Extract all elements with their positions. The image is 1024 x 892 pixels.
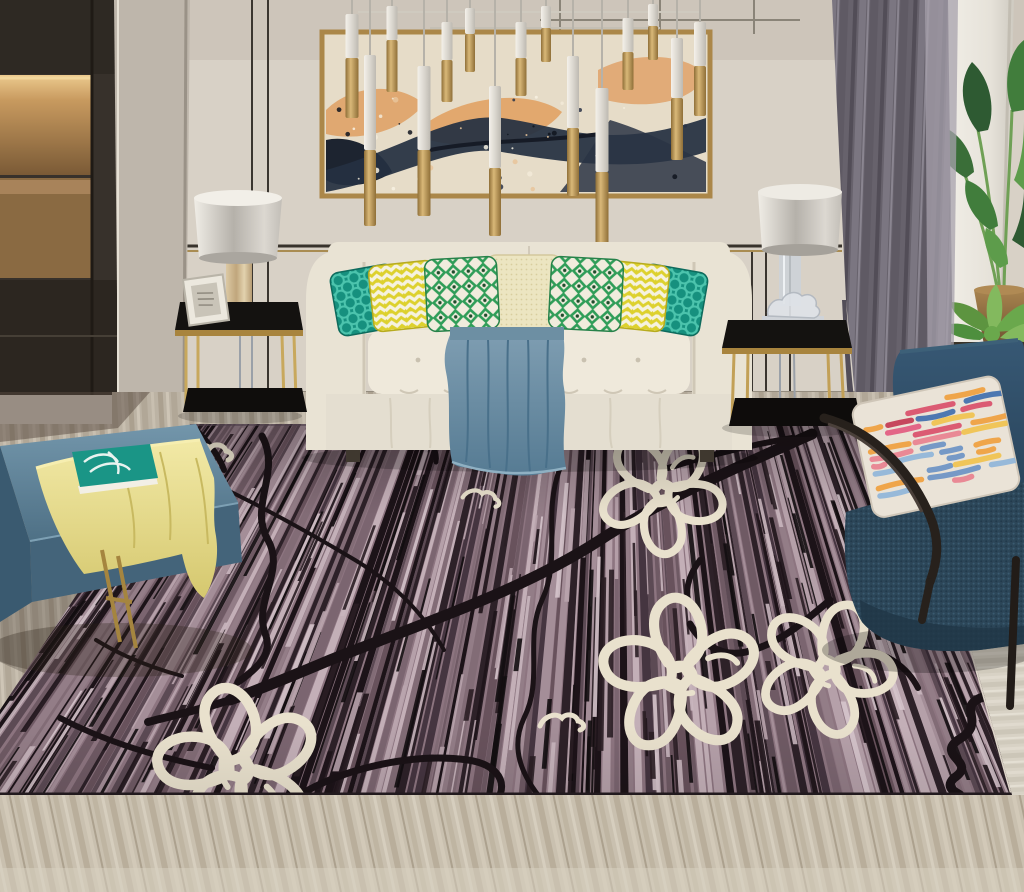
cabinet	[0, 0, 118, 395]
pillow-streak	[949, 456, 962, 459]
pendant-white-section	[387, 6, 398, 40]
sofa-leg	[346, 450, 360, 462]
pendant-gold-section	[596, 172, 609, 244]
pendant-white-section	[516, 22, 527, 58]
niche-shelf-edge	[0, 180, 92, 194]
paint-speckle	[672, 174, 677, 179]
paint-speckle	[358, 178, 360, 180]
table-top-right	[722, 320, 852, 348]
paint-speckle	[337, 107, 342, 112]
paint-speckle	[532, 125, 534, 127]
pendant-gold-section	[623, 52, 634, 90]
living-room-photo	[0, 0, 1024, 892]
lamp-shade-right	[758, 192, 842, 250]
pendant-gold-section	[442, 60, 453, 102]
paint-speckle	[527, 171, 532, 176]
pendant-gold-section	[364, 150, 376, 226]
pendant-gold-section	[567, 128, 579, 196]
paint-speckle	[460, 127, 462, 129]
paint-speckle	[548, 133, 551, 136]
pendant-white-section	[648, 4, 658, 26]
bench-shadow	[0, 623, 252, 677]
paint-speckle	[535, 96, 538, 99]
pendant-white-section	[465, 8, 475, 34]
photo-frame	[183, 274, 229, 325]
table-base-shelf-left	[183, 388, 307, 412]
pillow-streak	[979, 449, 994, 453]
paint-speckle	[379, 114, 383, 118]
pillow-diamond-left	[424, 256, 500, 332]
paint-speckle	[531, 187, 535, 191]
pendant-gold-section	[489, 168, 501, 236]
pendant-gold-section	[694, 66, 706, 116]
sofa-leg	[700, 450, 714, 462]
pendant-gold-section	[465, 34, 475, 72]
floor-bottom-light	[0, 868, 1024, 892]
paint-speckle	[392, 98, 394, 100]
paint-speckle	[525, 134, 527, 136]
cabinet-upper-door	[0, 0, 118, 74]
pendant-white-section	[623, 18, 634, 52]
paint-speckle	[512, 99, 515, 102]
lamp-shade	[194, 198, 282, 258]
pendant-white-section	[364, 55, 376, 150]
paint-speckle	[560, 102, 563, 105]
pendant-white-section	[541, 6, 551, 28]
lamp-shade-top-right	[758, 184, 842, 200]
paint-speckle	[408, 130, 413, 135]
pendant-white-section	[567, 56, 579, 128]
pendant-white-section	[694, 22, 706, 66]
pendant-gold-section	[516, 58, 527, 96]
throw-blanket	[445, 327, 566, 476]
pillow-streak	[874, 464, 885, 467]
cabinet-drawers	[0, 280, 118, 395]
paint-speckle	[513, 159, 518, 164]
paint-speckle	[353, 127, 356, 130]
paint-speckle	[398, 123, 400, 125]
table-gold-edge-right	[722, 348, 852, 354]
paint-speckle	[345, 132, 350, 137]
paint-speckle	[393, 97, 399, 103]
pendant-white-section	[596, 88, 609, 172]
paint-speckle	[392, 187, 396, 191]
sofa-pillows	[329, 255, 709, 337]
paint-speckle	[547, 136, 549, 138]
paint-speckle	[507, 134, 509, 136]
pendant-white-section	[671, 38, 683, 98]
pendant-gold-section	[541, 28, 551, 62]
throw-fold-top	[450, 327, 564, 340]
pendant-white-section	[442, 22, 453, 60]
pendant-white-section	[489, 86, 501, 168]
cabinet-niche-lit	[0, 75, 92, 175]
pendant-white-section	[418, 66, 431, 150]
lamp-shade-top	[194, 190, 282, 206]
paint-speckle	[552, 131, 557, 136]
pendant-gold-section	[648, 26, 658, 60]
paint-speckle	[684, 124, 688, 128]
pendant-gold-section	[387, 40, 398, 92]
pendant-gold-section	[671, 98, 683, 160]
pendant-gold-section	[418, 150, 431, 216]
table-gold-edge-left	[175, 330, 303, 336]
pendant-gold-section	[346, 58, 359, 118]
lamp-shade-bottom-right	[762, 244, 838, 256]
pendant-white-section	[346, 14, 359, 58]
bench	[0, 424, 252, 677]
frame-print	[191, 282, 221, 317]
lamp-shade-bottom	[199, 252, 277, 264]
pillow-streak	[866, 427, 881, 431]
paint-speckle	[484, 145, 489, 150]
paint-speckle	[623, 107, 625, 109]
paint-speckle	[511, 147, 513, 149]
frame-print-marks	[197, 291, 215, 307]
pillow-diamond-right	[548, 256, 624, 332]
